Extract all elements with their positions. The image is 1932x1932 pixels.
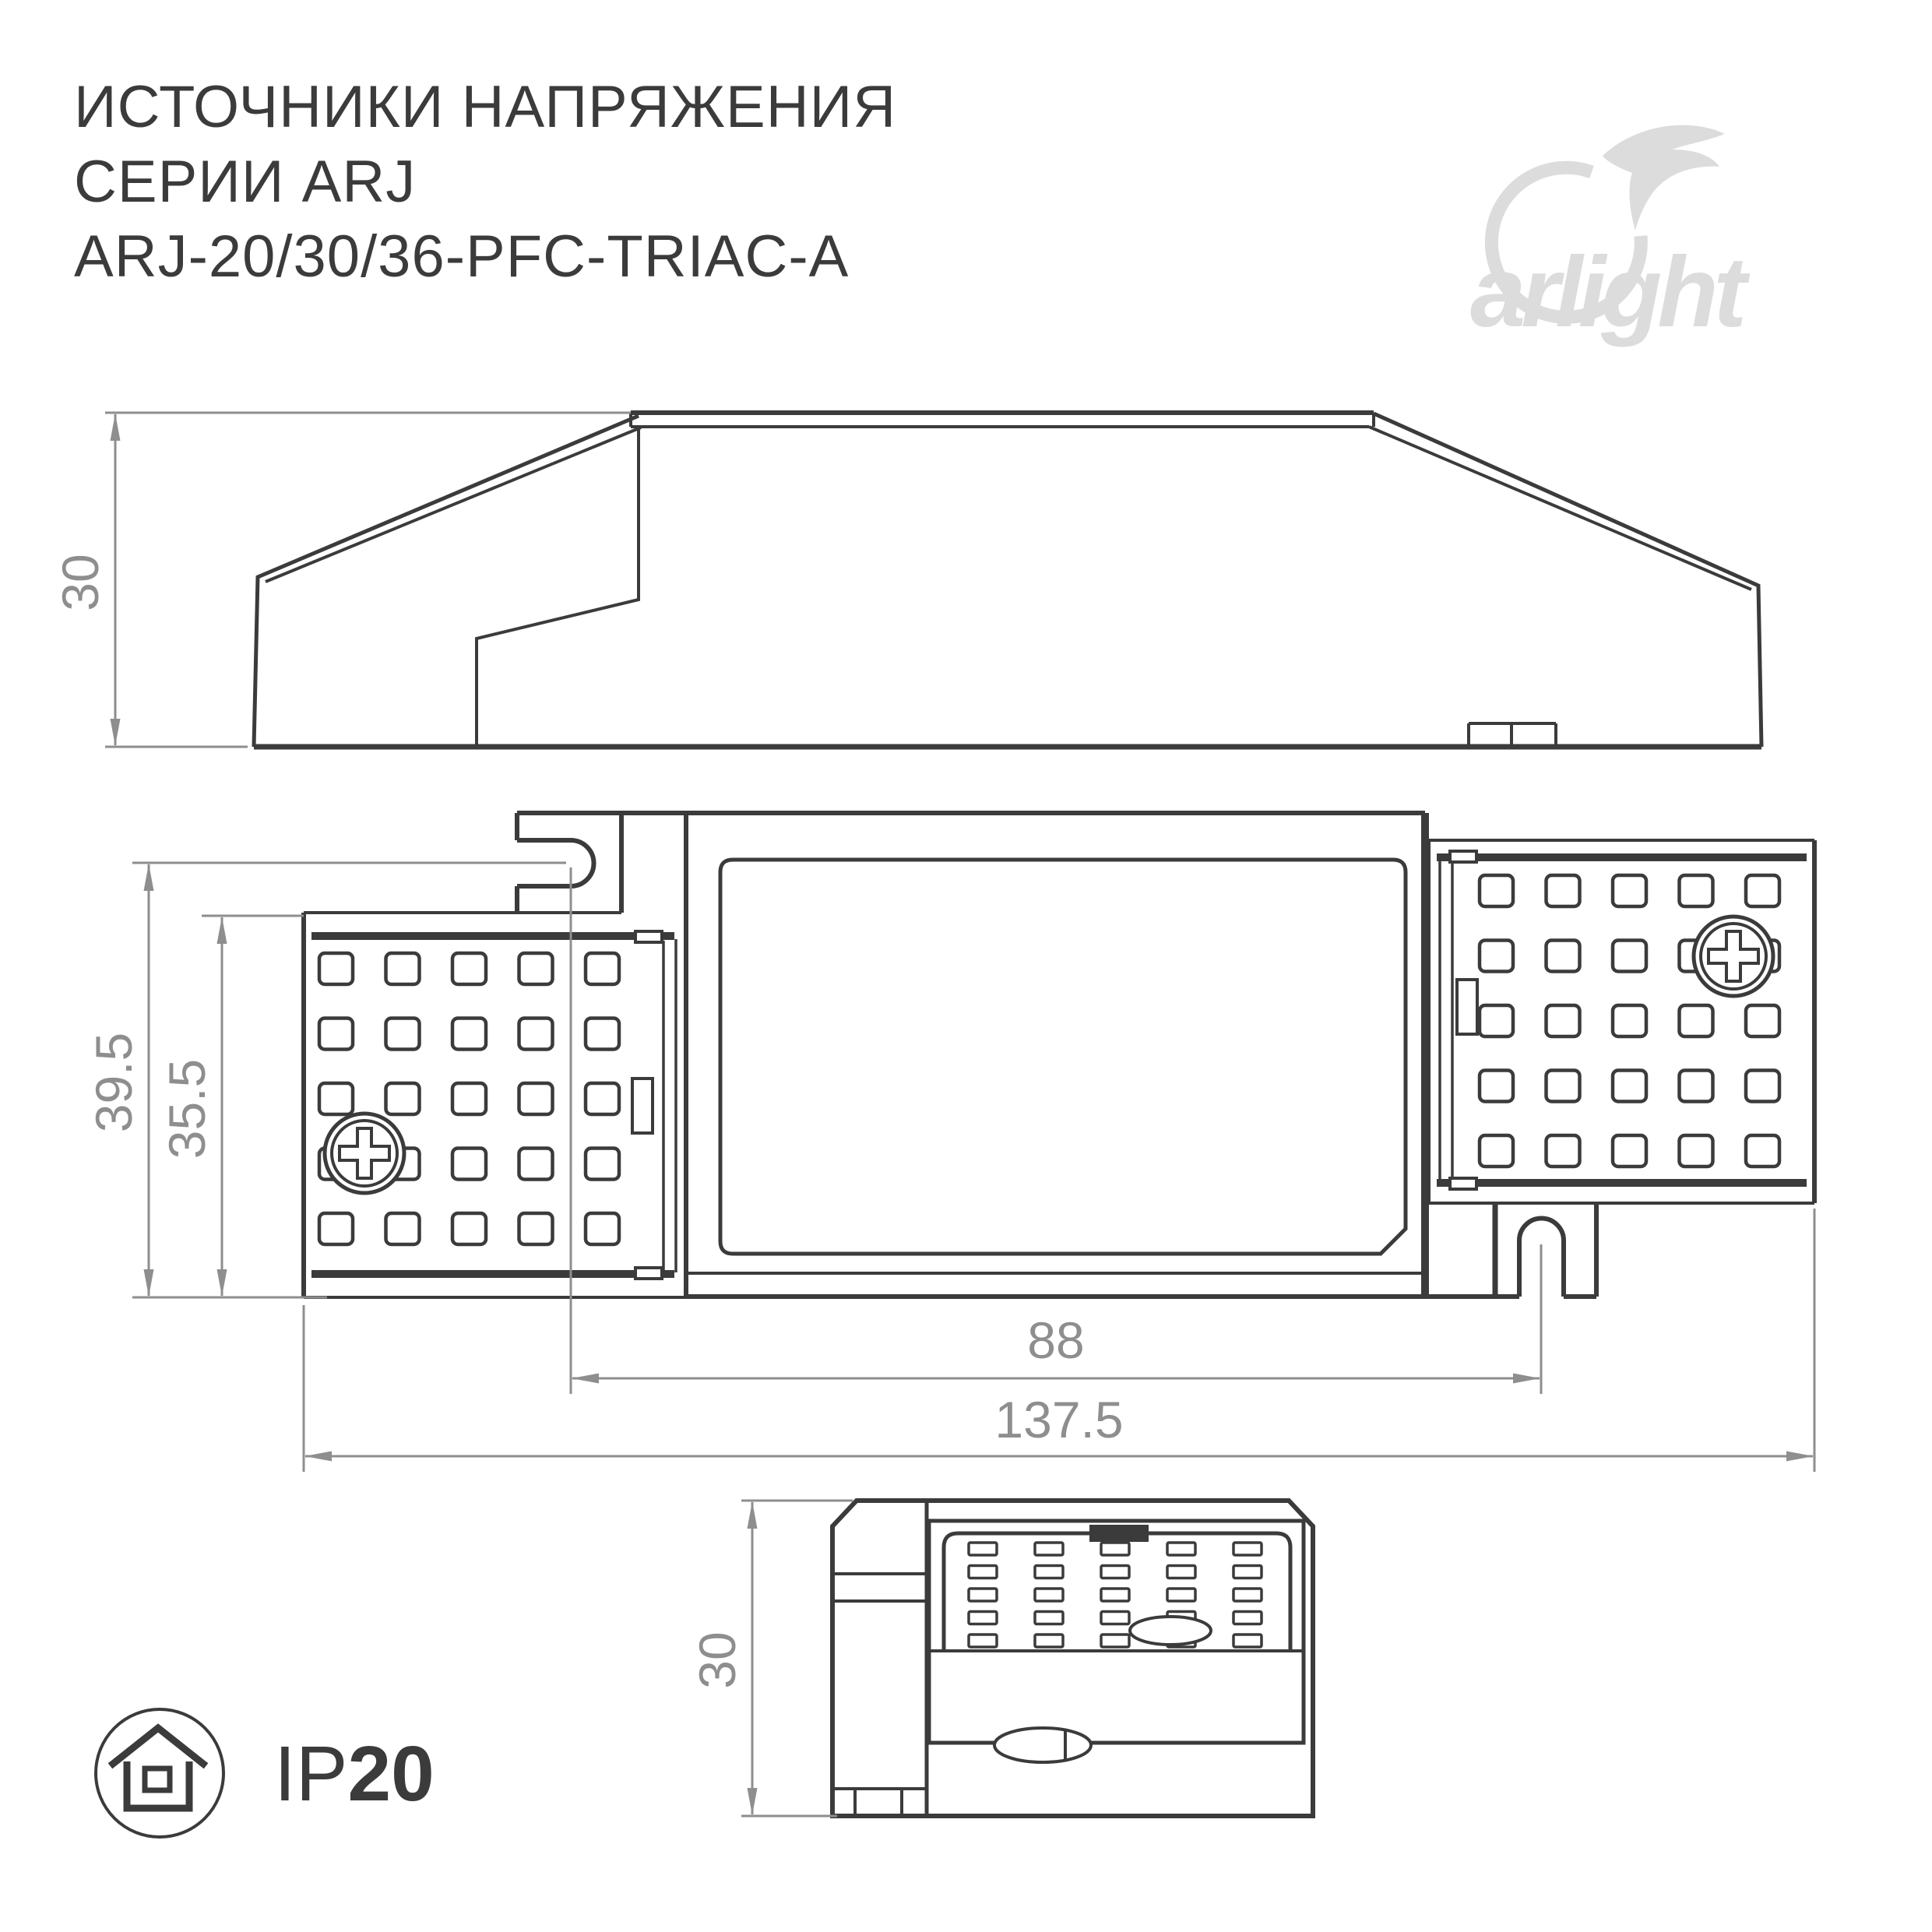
datasheet-page: ИСТОЧНИКИ НАПРЯЖЕНИЯ СЕРИИ ARJ ARJ-20/30…	[0, 0, 1932, 1932]
vent-hole	[519, 1019, 553, 1050]
vent-hole	[519, 953, 553, 984]
vent-hole	[1613, 941, 1646, 972]
front-body	[517, 813, 1596, 1297]
vent-hole	[386, 1213, 420, 1244]
ip-rating-label: IP20	[274, 1730, 435, 1818]
title-line-2: СЕРИИ ARJ	[74, 149, 416, 215]
phillips-screw-icon-right	[1694, 917, 1773, 996]
vent-grid-end	[969, 1543, 1262, 1647]
dim-end-height: 30	[688, 1501, 853, 1816]
vent-hole	[1101, 1635, 1129, 1647]
title-block: ИСТОЧНИКИ НАПРЯЖЕНИЯ СЕРИИ ARJ ARJ-20/30…	[74, 74, 896, 290]
dim-label-side-30: 30	[51, 554, 109, 611]
vent-hole	[452, 1213, 486, 1244]
vent-hole	[586, 1213, 619, 1244]
vent-hole	[519, 1083, 553, 1114]
dim-label-39-5: 39.5	[85, 1033, 143, 1132]
vent-hole	[1547, 941, 1580, 972]
vent-hole	[1547, 875, 1580, 906]
vent-hole	[1101, 1566, 1129, 1578]
dim-label-88: 88	[1027, 1311, 1084, 1369]
vent-hole	[1167, 1543, 1195, 1555]
vent-hole	[586, 1083, 619, 1114]
vent-hole	[1167, 1566, 1195, 1578]
vent-hole	[1613, 1071, 1646, 1102]
knockout-oval-large	[994, 1728, 1091, 1762]
dim-label-137-5: 137.5	[994, 1391, 1123, 1448]
vent-hole	[1680, 1135, 1713, 1167]
front-right-terminal-block	[1429, 840, 1814, 1203]
vent-hole	[1746, 1135, 1779, 1167]
vent-hole	[319, 1083, 353, 1114]
knockout-oval-small	[1130, 1617, 1211, 1645]
vent-hole	[586, 1019, 619, 1050]
vent-hole	[452, 1083, 486, 1114]
connector-key-mark	[1089, 1525, 1149, 1542]
vent-hole	[1746, 875, 1779, 906]
arlight-flame-icon	[1603, 125, 1725, 231]
ip-value: 20	[347, 1730, 434, 1818]
vent-hole	[1101, 1589, 1129, 1601]
vent-hole	[1035, 1635, 1063, 1647]
vent-hole	[1547, 1005, 1580, 1036]
arlight-wordmark: arlight	[1470, 237, 1751, 348]
vent-hole	[1480, 1071, 1513, 1102]
vent-hole	[969, 1612, 997, 1624]
vent-hole	[386, 1083, 420, 1114]
vent-hole	[1680, 1071, 1713, 1102]
phillips-screw-icon-left	[325, 1114, 404, 1193]
dim-front-slot-spacing: 88	[571, 867, 1541, 1394]
front-left-terminal-block	[304, 913, 686, 1297]
vent-hole	[586, 1149, 619, 1180]
vent-hole	[1613, 875, 1646, 906]
side-view: 30	[51, 413, 1761, 747]
title-line-3: ARJ-20/30/36-PFC-TRIAC-A	[74, 223, 849, 290]
vent-hole	[319, 1213, 353, 1244]
vent-hole	[1035, 1589, 1063, 1601]
front-view: 39.5 35.5 88 137.5	[85, 813, 1814, 1472]
vent-hole	[1547, 1071, 1580, 1102]
vent-hole	[1746, 1005, 1779, 1036]
vent-hole	[1613, 1135, 1646, 1167]
house-icon	[113, 1728, 203, 1808]
vent-hole	[1233, 1566, 1262, 1578]
arlight-logo: arlight	[1470, 125, 1751, 348]
end-view-outline	[832, 1501, 1313, 1816]
dim-front-body-height: 35.5	[158, 916, 304, 1297]
vent-hole	[1101, 1543, 1129, 1555]
vent-hole	[452, 953, 486, 984]
vent-hole	[1547, 1135, 1580, 1167]
vent-hole	[1680, 875, 1713, 906]
title-line-1: ИСТОЧНИКИ НАПРЯЖЕНИЯ	[74, 74, 896, 140]
vent-hole	[1167, 1589, 1195, 1601]
vent-hole	[969, 1635, 997, 1647]
vent-hole	[519, 1149, 553, 1180]
vent-hole	[1101, 1612, 1129, 1624]
ip-badge: IP20	[96, 1709, 435, 1837]
vent-hole	[1233, 1543, 1262, 1555]
vent-hole	[319, 1019, 353, 1050]
vent-hole	[1480, 875, 1513, 906]
dim-label-end-30: 30	[688, 1631, 746, 1688]
vent-hole	[586, 953, 619, 984]
vent-hole	[452, 1149, 486, 1180]
vent-hole	[1035, 1612, 1063, 1624]
vent-hole	[1480, 1135, 1513, 1167]
dim-label-35-5: 35.5	[158, 1059, 216, 1159]
vent-hole	[319, 953, 353, 984]
end-view: 30	[688, 1501, 1313, 1816]
vent-hole	[1233, 1612, 1262, 1624]
vent-hole	[519, 1213, 553, 1244]
vent-hole	[1233, 1589, 1262, 1601]
vent-hole	[1035, 1543, 1063, 1555]
vent-hole	[969, 1566, 997, 1578]
vent-hole	[386, 953, 420, 984]
vent-hole	[1746, 1071, 1779, 1102]
vent-grid-left	[319, 953, 619, 1244]
dim-side-height: 30	[51, 413, 631, 747]
vent-hole	[1480, 1005, 1513, 1036]
vent-hole	[969, 1543, 997, 1555]
vent-hole	[1233, 1635, 1262, 1647]
vent-hole	[1480, 941, 1513, 972]
vent-hole	[452, 1019, 486, 1050]
vent-hole	[386, 1019, 420, 1050]
vent-hole	[1613, 1005, 1646, 1036]
vent-hole	[1680, 1005, 1713, 1036]
side-view-outline	[254, 413, 1761, 747]
ip-prefix: IP	[274, 1730, 347, 1818]
vent-hole	[1035, 1566, 1063, 1578]
vent-hole	[969, 1589, 997, 1601]
